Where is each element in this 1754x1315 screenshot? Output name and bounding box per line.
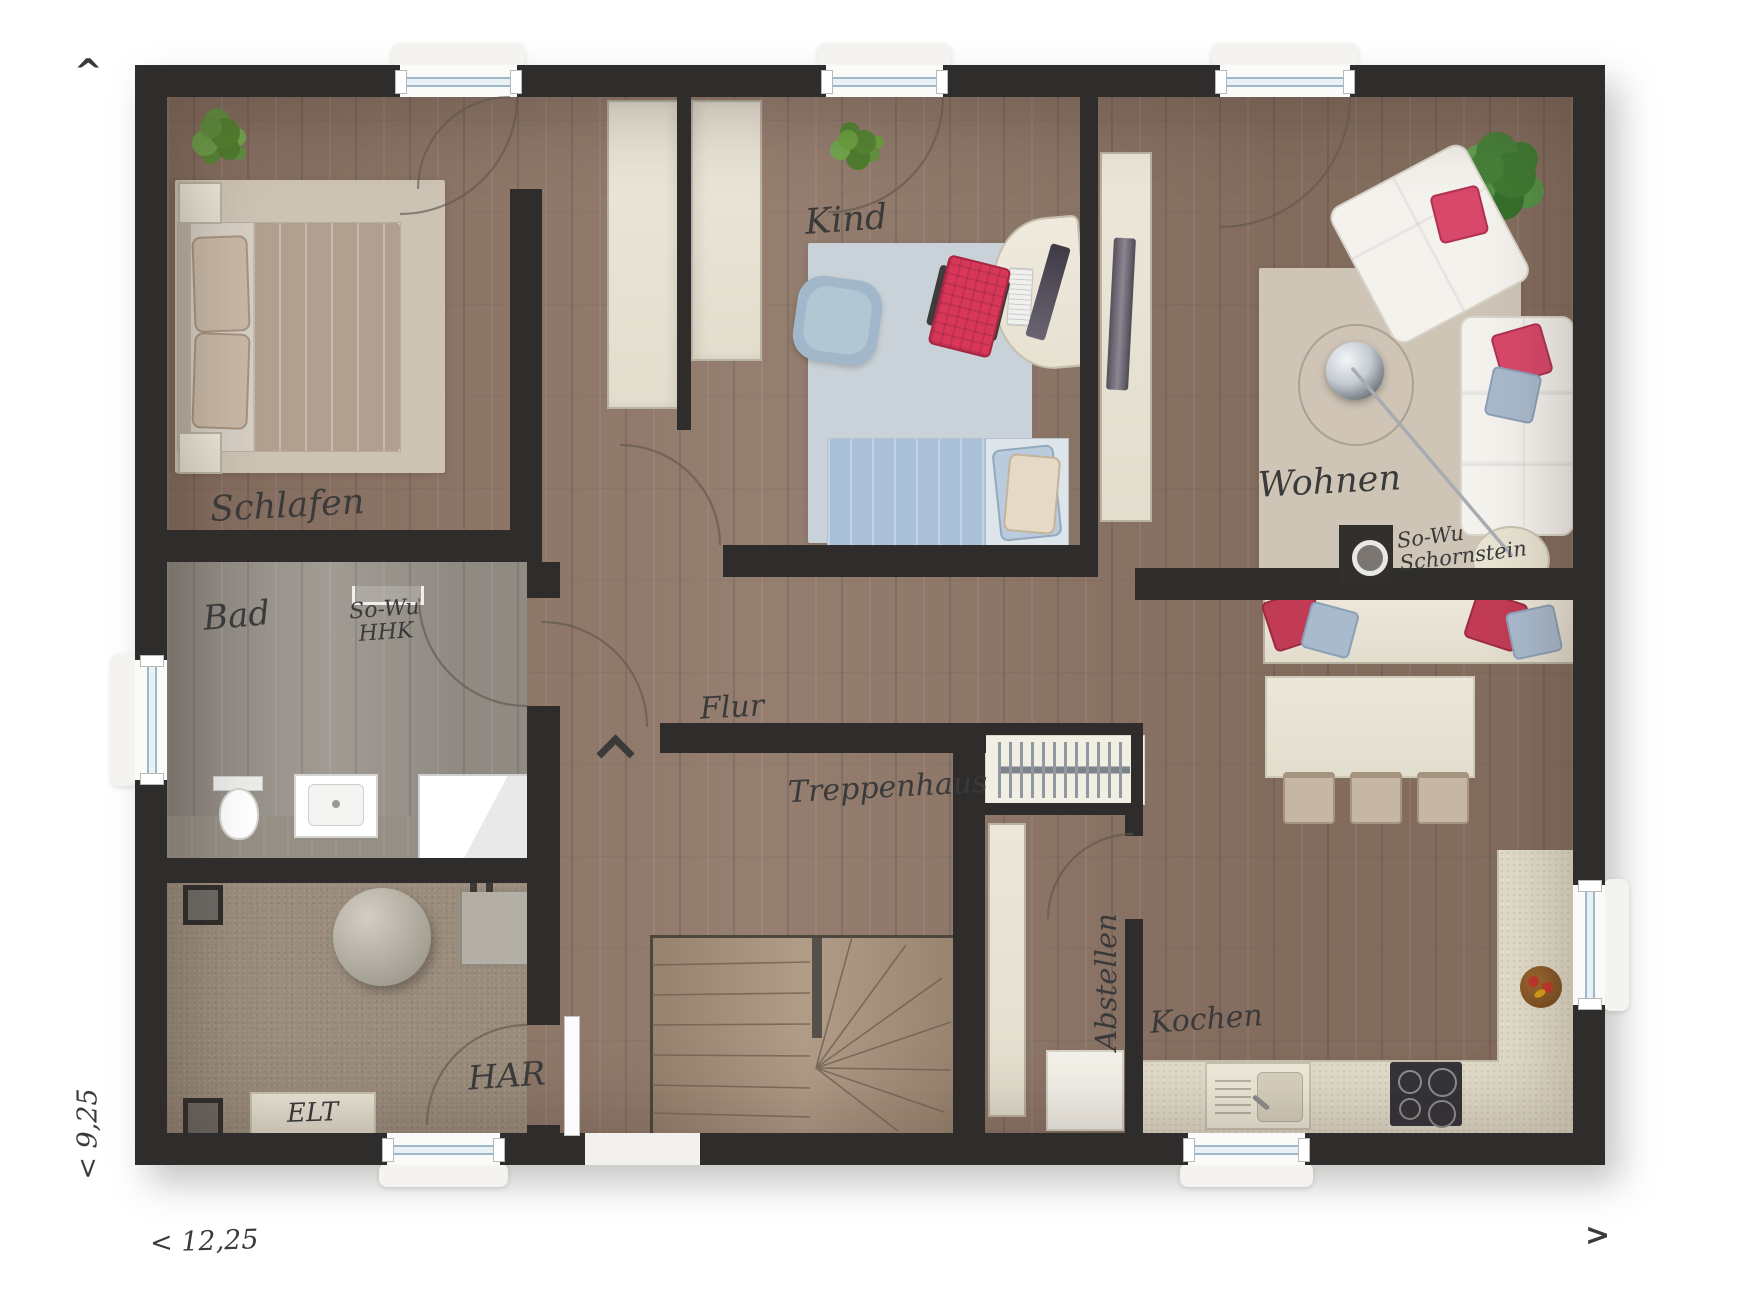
window <box>135 660 167 780</box>
wall-interior <box>723 545 1098 577</box>
room-label-elt: ELT <box>287 1093 340 1133</box>
wall-interior <box>1125 919 1143 1133</box>
radiator <box>998 742 1130 798</box>
cooktop <box>1390 1062 1462 1126</box>
plant-icon <box>838 130 858 150</box>
fruit <box>1533 987 1547 999</box>
annotation-so-wu-hhk: So-Wu HHK <box>348 596 421 647</box>
window-sill <box>818 43 951 67</box>
floor-cushion <box>789 272 885 368</box>
elt-panel: ELT <box>250 1092 376 1137</box>
window <box>1188 1133 1305 1165</box>
window-cap <box>1298 1138 1310 1162</box>
wall-interior <box>527 883 560 1025</box>
fruit-bowl <box>1520 966 1562 1008</box>
window-cap <box>1183 1138 1195 1162</box>
wall-exterior <box>135 65 167 660</box>
cabinet <box>1046 1050 1124 1131</box>
kitchen-counter-right <box>1497 850 1575 1062</box>
burner-icon <box>1428 1068 1457 1097</box>
wall-exterior <box>1573 65 1605 885</box>
wall-exterior <box>700 1133 1188 1165</box>
window <box>1220 65 1350 97</box>
floor-plan-canvas: ELT <box>0 0 1754 1315</box>
north-arrow: ^ <box>74 52 103 92</box>
pillow <box>1505 603 1564 660</box>
wall-interior <box>510 189 542 562</box>
bench <box>1263 598 1579 664</box>
bed-double <box>177 222 401 452</box>
window-cap <box>510 70 522 94</box>
room-label-kind: Kind <box>804 197 889 243</box>
window-sill <box>379 1163 508 1187</box>
wardrobe <box>691 100 762 361</box>
burner-icon <box>1428 1100 1456 1128</box>
sink-basin <box>1257 1072 1303 1122</box>
wall-exterior <box>500 1133 585 1165</box>
pillow <box>191 235 250 333</box>
bath-sink <box>294 774 378 838</box>
shelf <box>988 823 1026 1117</box>
wall-interior <box>660 723 986 753</box>
bed-kind-blanket <box>828 439 986 546</box>
window-sill <box>111 654 137 786</box>
wall-interior <box>985 723 1143 735</box>
nightstand <box>178 432 222 474</box>
window <box>826 65 943 97</box>
shaft <box>183 885 223 925</box>
window-cap <box>1578 998 1602 1010</box>
wall-interior <box>953 753 985 1133</box>
tank <box>333 888 431 986</box>
wall-exterior <box>135 780 167 1165</box>
wall-interior <box>1080 97 1098 577</box>
room-label-wohnen: Wohnen <box>1257 458 1402 505</box>
window-sill <box>1212 43 1358 67</box>
window-glass <box>147 664 157 776</box>
room-label-flur: Flur <box>699 688 765 726</box>
wall-interior <box>527 706 560 858</box>
bed-kind <box>827 438 1069 547</box>
dimension-depth: < 9,25 <box>73 1088 104 1179</box>
nightstand <box>178 182 222 224</box>
stair-newel <box>812 938 822 1038</box>
dining-chair <box>1417 772 1469 824</box>
window-sill <box>392 43 525 67</box>
dimension-width: < 12,25 <box>149 1224 259 1259</box>
room-label-schlafen: Schlafen <box>209 482 365 530</box>
room-label-bad: Bad <box>201 593 271 639</box>
window-cap <box>140 655 164 667</box>
wall-interior <box>1125 815 1143 836</box>
window-cap <box>821 70 833 94</box>
window-sill <box>1180 1163 1313 1187</box>
floor-cushion-top <box>801 284 874 357</box>
sink-drainboard <box>1215 1078 1251 1114</box>
window-cap <box>140 773 164 785</box>
bed-blanket <box>253 223 400 451</box>
window-cap <box>395 70 407 94</box>
window-glass <box>1224 77 1346 87</box>
wall-exterior <box>1305 1133 1605 1165</box>
wall-exterior <box>135 1133 387 1165</box>
window-cap <box>1215 70 1227 94</box>
radiator-niche <box>985 735 1145 805</box>
annotation-line: HHK <box>350 619 422 647</box>
wall-exterior <box>1573 1005 1605 1165</box>
wall-interior <box>677 97 691 430</box>
window <box>387 1133 500 1165</box>
bed-headboard <box>178 223 191 451</box>
wall-exterior <box>135 65 400 97</box>
wall-interior <box>985 803 1143 815</box>
window <box>400 65 517 97</box>
faucet-icon <box>332 800 340 808</box>
wall-interior <box>135 858 560 883</box>
window-glass <box>1585 889 1595 1001</box>
pillow <box>1003 453 1062 535</box>
dining-table <box>1265 676 1475 778</box>
east-arrow: > <box>1585 1218 1610 1253</box>
staircase <box>650 935 956 1136</box>
shower <box>418 774 536 862</box>
window-sill <box>1603 879 1629 1011</box>
window-cap <box>493 1138 505 1162</box>
wardrobe <box>607 100 681 409</box>
window-cap <box>1343 70 1355 94</box>
chimney-flue-icon <box>1352 540 1388 576</box>
window-cap <box>936 70 948 94</box>
chimney <box>1339 525 1393 583</box>
room-label-abstellen: Abstellen <box>1089 913 1123 1051</box>
window-cap <box>1578 880 1602 892</box>
shaft <box>183 1098 223 1138</box>
kitchen-sink <box>1205 1062 1311 1130</box>
burner-icon <box>1398 1070 1422 1094</box>
plant-icon <box>200 116 222 138</box>
lamp-ball <box>1326 342 1384 400</box>
window-glass <box>830 77 939 87</box>
appliance <box>460 890 536 966</box>
dining-chair <box>1283 772 1335 824</box>
toilet-bowl <box>219 788 259 840</box>
window-glass <box>1192 1145 1301 1155</box>
entrance-door-threshold <box>585 1133 700 1165</box>
wall-exterior <box>943 65 1220 97</box>
wall-exterior <box>1350 65 1605 97</box>
window-glass <box>404 77 513 87</box>
window <box>1573 885 1605 1005</box>
wall-interior <box>527 562 560 598</box>
room-label-har: HAR <box>467 1053 547 1097</box>
dining-chair <box>1350 772 1402 824</box>
pillow <box>1483 365 1542 424</box>
wall-exterior <box>517 65 826 97</box>
sofa <box>1460 316 1574 536</box>
window-cap <box>382 1138 394 1162</box>
wall-interior <box>527 1125 560 1133</box>
wall-interior <box>1131 723 1143 815</box>
wall-interior <box>135 530 542 562</box>
window-glass <box>391 1145 496 1155</box>
fruit <box>1528 976 1539 987</box>
toilet <box>213 776 261 838</box>
burner-icon <box>1399 1098 1421 1120</box>
pillow <box>1300 600 1361 659</box>
pillow <box>191 332 250 430</box>
entrance-door-leaf <box>564 1016 580 1136</box>
